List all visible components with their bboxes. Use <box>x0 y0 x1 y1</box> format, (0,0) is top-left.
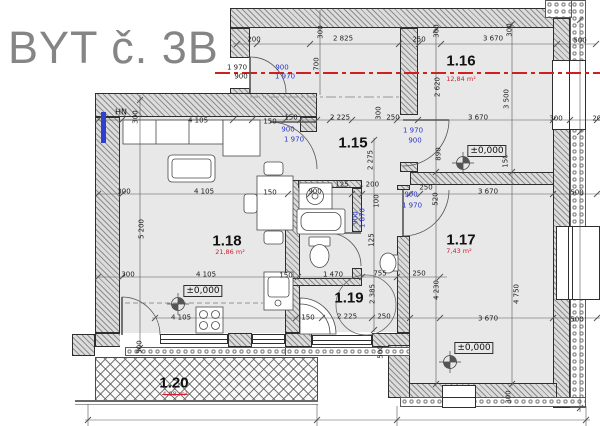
dimension-label: 250 <box>412 37 425 44</box>
room-area-label: 7,43 m² <box>446 247 471 255</box>
dimension-label: 520 <box>433 192 440 205</box>
dimension-label: 300 <box>549 116 562 123</box>
dimension-label: 900 <box>275 65 288 72</box>
dimension-label: 500 <box>573 38 586 45</box>
dimension-label: 300 <box>121 272 134 279</box>
wall <box>285 180 300 333</box>
insul <box>285 347 410 356</box>
dimension-label: 900 <box>404 192 417 199</box>
dimension-label: 250 <box>419 185 432 192</box>
dimension-label: 1 200 <box>359 182 379 189</box>
level-marker: ±0,000 <box>454 342 493 354</box>
floorplan-canvas: BYT č. 3B <box>0 0 600 426</box>
dimension-label: 755 <box>373 271 386 278</box>
terrace-1-20 <box>95 357 318 401</box>
dimension-label: 300 <box>507 23 514 36</box>
dimension-label: 4 105 <box>171 315 191 322</box>
wall <box>400 162 418 172</box>
level-marker: ±0,000 <box>467 145 506 157</box>
room-area-label: 4,98 m² <box>162 390 187 398</box>
dimension-label: 4 105 <box>188 118 208 125</box>
dimension-label: 500 <box>137 340 144 353</box>
dimension-label: 4 750 <box>514 284 521 304</box>
dimension-label: 900 <box>308 189 321 196</box>
room-label-1-16: 1.16 <box>446 53 475 70</box>
dimension-label: 1 970 <box>275 74 295 81</box>
dimension-label: 150 <box>284 115 297 122</box>
dimension-label: 4 105 <box>196 272 216 279</box>
dimension-label: 1 970 <box>284 137 304 144</box>
winh <box>312 335 372 345</box>
dimension-label: 300 <box>133 110 140 123</box>
dimension-label: 3 500 <box>504 89 511 109</box>
electrical-panel <box>101 112 106 143</box>
dimension-label: 4 230 <box>434 280 441 300</box>
dimension-label: 250 <box>412 271 425 278</box>
dimension-label: 150 <box>301 315 314 322</box>
open <box>352 232 362 268</box>
room-label-1-19: 1.19 <box>334 290 363 307</box>
misc-label: HN <box>115 108 127 117</box>
dimension-label: 300 <box>117 189 130 196</box>
wall <box>285 333 312 347</box>
wall <box>95 117 120 333</box>
dimension-label: 1 970 <box>403 128 423 135</box>
winh <box>160 334 228 344</box>
dimension-label: 2 275 <box>368 150 375 170</box>
dimension-label: 700 <box>314 57 321 70</box>
room-label-1-17: 1.17 <box>446 232 475 249</box>
room-label-1-20: 1.20 <box>159 375 188 392</box>
dimension-label: 3 670 <box>478 189 498 196</box>
dimension-label: 1 970 <box>402 203 422 210</box>
dimension-label: 4 105 <box>194 189 214 196</box>
bay <box>556 226 600 300</box>
wall <box>72 334 95 356</box>
room-area-label: 21,86 m² <box>215 248 245 256</box>
dimension-label: 900 <box>281 127 294 134</box>
dimension-label: 2 385 <box>370 284 377 304</box>
plan-title: BYT č. 3B <box>8 22 219 74</box>
dimension-label: 300 <box>318 25 325 38</box>
dimension-label: 250 <box>377 314 390 321</box>
dimension-label: 1 870 <box>360 208 367 228</box>
winh <box>442 385 476 408</box>
dimension-label: 100 <box>374 194 381 207</box>
wall <box>400 383 557 398</box>
insul <box>545 0 572 18</box>
insul <box>400 397 586 407</box>
room-label-1-15: 1.15 <box>338 135 367 152</box>
dimension-label: 3 670 <box>483 36 503 43</box>
level-marker: ±0,000 <box>183 285 222 297</box>
dimension-label: 900 <box>234 74 247 81</box>
dimension-label: 2 825 <box>333 36 353 43</box>
dimension-label: 500 <box>378 345 385 358</box>
dimension-label: 1 970 <box>227 65 247 72</box>
dimension-label: 2 225 <box>330 115 350 122</box>
dimension-label: 150 <box>263 119 276 126</box>
dimension-label: 3 670 <box>478 316 498 323</box>
dimension-label: 900 <box>408 138 421 145</box>
dimension-label: 200 <box>592 116 600 123</box>
dimension-label: 1 470 <box>323 272 343 279</box>
winh <box>252 334 285 344</box>
dimension-label: 150 <box>263 190 276 197</box>
dimension-label: 890 <box>436 147 443 160</box>
dimension-label: 2 225 <box>337 314 357 321</box>
dimension-label: 125 <box>335 182 348 189</box>
dimension-label: 150 <box>279 273 292 280</box>
ground <box>75 400 318 405</box>
dimension-label: 125 <box>369 233 376 246</box>
dimension-label: 300 <box>506 390 513 403</box>
dimension-label: 3 670 <box>468 115 488 122</box>
dimension-label: 300 <box>376 106 383 119</box>
room-label-1-18: 1.18 <box>212 233 241 250</box>
wall <box>228 333 252 347</box>
room-area-label: 12,84 m² <box>446 75 476 83</box>
dimension-label: 500 <box>570 317 583 324</box>
wall <box>397 236 410 333</box>
dimension-label: 200 <box>247 37 260 44</box>
wall <box>285 278 362 286</box>
dimension-label: 500 <box>570 190 583 197</box>
dimension-label: 5 200 <box>139 219 146 239</box>
dimension-label: 2 620 <box>435 77 442 97</box>
wall <box>300 117 317 132</box>
dimension-label: 300 <box>434 24 441 37</box>
dimension-label: 250 <box>386 115 399 122</box>
